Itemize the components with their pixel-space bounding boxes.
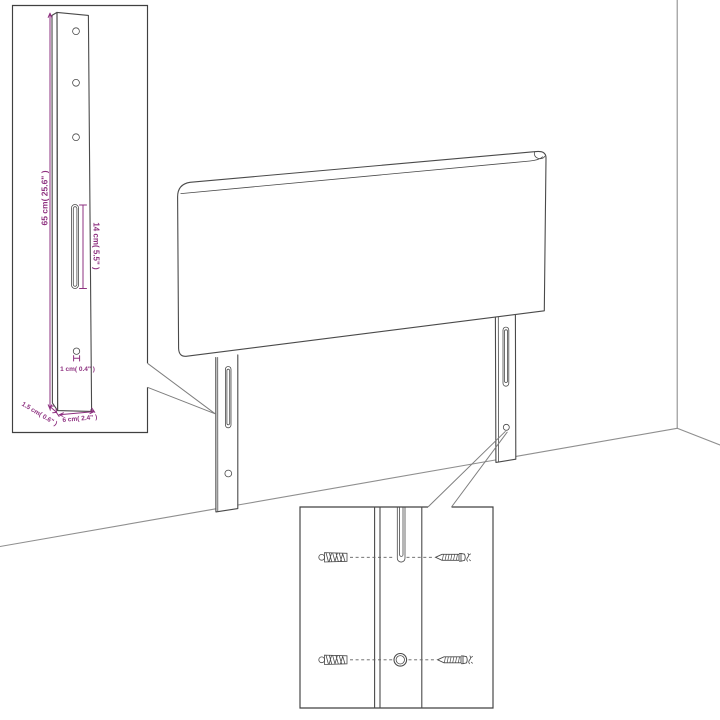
left-leg-slot (225, 367, 231, 428)
inset-leg-drawing (52, 12, 92, 411)
inset-callout-lines (148, 363, 216, 414)
dimension-bracket (74, 356, 80, 361)
leg-dimension-inset: 65 cm( 25.6" ) 14 cm( 5.5" ) 1 cm( 0.4" … (13, 6, 216, 433)
inset-leg-slot (72, 205, 79, 289)
leg-closeup-slot-inner (400, 507, 403, 556)
dimension-height-65cm: 65 cm( 25.6" ) (40, 13, 52, 409)
dimension-label-thickness: 1.5 cm( 0.6" ) (20, 401, 58, 428)
screw-bottom (438, 656, 473, 664)
dimension-label-slot: 14 cm( 5.5" ) (92, 222, 101, 270)
right-leg-slot (503, 327, 509, 386)
leg-closeup (375, 507, 422, 708)
inset-leg-hole-middle (73, 79, 80, 86)
wall-plug-bottom (319, 655, 347, 664)
leg-closeup-edges (375, 507, 422, 708)
dimension-label-height: 65 cm( 25.6" ) (40, 170, 50, 225)
diagram-canvas: 65 cm( 25.6" ) 14 cm( 5.5" ) 1 cm( 0.4" … (0, 0, 720, 720)
screw-top (436, 553, 471, 561)
headboard-assembly-diagram: 65 cm( 25.6" ) 14 cm( 5.5" ) 1 cm( 0.4" … (0, 0, 720, 720)
panel-top-lip-line (181, 157, 543, 194)
floor-line-left-wall (0, 428, 677, 546)
inset-leg-bottom-hole (73, 348, 79, 354)
inset-leg-hole-top (73, 28, 80, 35)
right-leg-slot-inner (505, 330, 508, 383)
left-leg-screw-hole (225, 470, 232, 477)
dimension-line (80, 205, 87, 289)
inset-leg-hole-lower (73, 134, 80, 141)
inset-border (300, 507, 493, 708)
dimension-thickness-1point5cm: 1.5 cm( 0.6" ) (20, 401, 58, 428)
leg-closeup-slot (397, 507, 405, 562)
dimension-label-hole: 1 cm( 0.4" ) (60, 366, 95, 373)
dimension-label-width: 6 cm( 2.4" ) (62, 414, 97, 424)
headboard-left-leg (216, 355, 238, 512)
floor-line-right-wall (677, 428, 720, 445)
room-corner (0, 0, 720, 547)
right-leg-screw-hole (503, 424, 509, 430)
inset-leg-slot-inner (73, 207, 77, 287)
hardware-top-row (319, 553, 471, 562)
panel-outline (178, 151, 546, 356)
inset-leg-front-face (57, 12, 92, 411)
headboard-panel (178, 151, 546, 356)
mounting-detail-inset (300, 431, 507, 708)
dimension-hole-1cm: 1 cm( 0.4" ) (60, 356, 95, 373)
headboard-right-leg (495, 315, 515, 462)
wall-plug-top (319, 553, 347, 562)
left-leg-slot-inner (227, 369, 230, 425)
leg-closeup-hole-inner (396, 656, 404, 664)
